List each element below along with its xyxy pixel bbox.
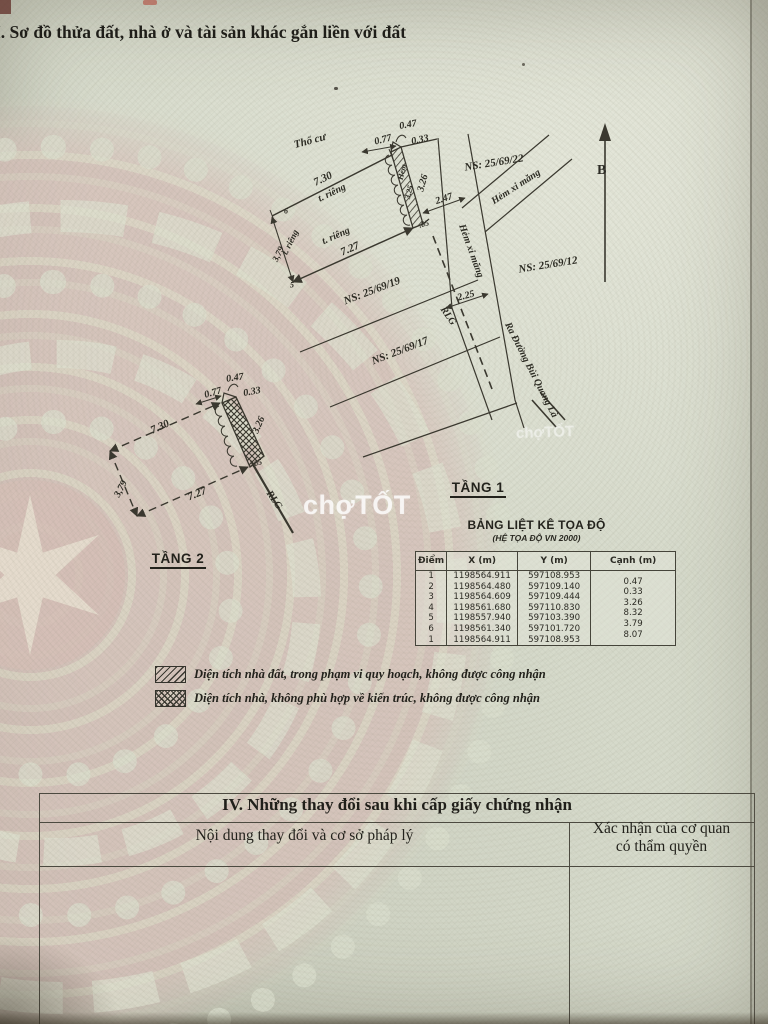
scanned-land-certificate-page: I. Sơ đồ thửa đất, nhà ở và tài sản khác… [0,0,768,1024]
section4-col2-line2: có thẩm quyền [569,838,754,856]
col-header-x: X (m) [447,552,518,571]
diagram-label: Hẻm xi măng [489,167,542,207]
floor1-label: TẦNG 1 [428,480,528,495]
page-edge-shade [752,0,768,1024]
diagram-label: 3.26 [415,173,430,193]
section4-col2-line1: Xác nhận của cơ quan [569,820,754,838]
diagram-label: 3,79 [112,479,130,500]
red-mark [143,0,157,5]
coord-cell: 597109.140 [518,582,591,593]
coord-cell: 2 [416,582,447,593]
col-header-diem: Điểm [416,552,447,571]
corner-shadow [0,934,120,1024]
coord-cell: 1198564.911 [447,571,518,582]
section4-title: IV. Những thay đổi sau khi cấp giấy chứn… [40,795,754,815]
diagram-label: 0.47 [398,118,417,132]
diagram-label: NS: 25/69/19 [342,275,402,308]
diagram-label: 3.25 [403,184,415,200]
legend-item: Diện tích nhà, không phù hợp về kiến trú… [155,690,546,707]
diagonal-hatch-swatch [155,666,186,683]
diagram-label: 7.27 [339,240,361,259]
diagram-label: 3.26 [250,415,267,435]
legend-item: Diện tích nhà đất, trong phạm vi quy hoạ… [155,666,546,683]
diagram-label: NS: 25/69/17 [370,335,430,368]
legend: Diện tích nhà đất, trong phạm vi quy hoạ… [155,666,546,714]
coord-cell: 597110.830 [518,603,591,614]
chotot-watermark-small: chợTỐT [516,423,575,442]
coord-cell: 8.07 [591,635,676,646]
coord-cell: 6 [416,624,447,635]
section4-table: IV. Những thay đổi sau khi cấp giấy chứn… [39,793,755,1024]
legend-text: Diện tích nhà đất, trong phạm vi quy hoạ… [194,667,546,682]
diagram-label: 3,79 [270,245,286,264]
diagram-label: RLG [264,489,284,512]
coord-row: 11198564.911597108.9538.07 [416,635,676,646]
coordinate-table: Điểm X (m) Y (m) Cạnh (m) 11198564.91159… [415,551,676,646]
diagram-label: 0.33 [242,385,261,399]
scan-speck [522,63,525,66]
coord-cell: 597103.390 [518,613,591,624]
diagram-label: .05 [418,218,430,229]
chotot-watermark: chợTỐT [303,490,411,521]
legend-text: Diện tích nhà, không phù hợp về kiến trú… [194,691,540,706]
coord-cell: 1198561.680 [447,603,518,614]
coord-cell: 1198561.340 [447,624,518,635]
diagram-label: .05 [251,457,263,468]
diagram-label: 0.77 [373,132,393,147]
diagram-label: Hẻm xi măng [456,223,486,280]
diagram-label: 7.27 [186,485,208,503]
north-label: B [597,163,606,179]
coord-cell: 597108.953 [518,635,591,646]
diagram-label: 0.33 [410,133,429,147]
section4-col1-header: Nội dung thay đổi và cơ sở pháp lý [40,827,569,845]
coord-cell: 3 [416,592,447,603]
coord-header-row: Điểm X (m) Y (m) Cạnh (m) [416,552,676,571]
diagram-label: 2.47 [434,191,454,207]
section4-col2-header: Xác nhận của cơ quan có thẩm quyền [569,820,754,856]
floor2-label: TẦNG 2 [128,551,228,566]
coord-cell: 1198564.609 [447,592,518,603]
coord-cell: 5 [416,613,447,624]
diagram-label: 6 [284,207,288,216]
col-header-canh: Cạnh (m) [591,552,676,571]
scan-speck [334,87,338,90]
coord-cell: 1198564.480 [447,582,518,593]
diagram-label: 0.47 [226,371,245,384]
coord-table-subtitle: (HỆ TỌA ĐỘ VN 2000) [413,533,660,543]
coord-cell: 1198564.911 [447,635,518,646]
coord-cell: 1 [416,635,447,646]
diagram-label: 2.25 [456,288,476,303]
coord-table-body: 11198564.911597108.95321198564.480597109… [416,571,676,646]
diagram-label: 5 [290,281,294,290]
coord-cell: 4 [416,603,447,614]
col-header-y: Y (m) [518,552,591,571]
coord-table-title: BẢNG LIỆT KÊ TỌA ĐỘ [413,518,660,532]
diagram-label: 0.77 [203,385,223,400]
diagram-label: NS: 25/69/22 [464,152,525,173]
cross-hatch-swatch [155,690,186,707]
diagram-label: 7.30 [312,169,335,188]
diagram-label: Ra Đường Bùi Quang Là [502,321,560,420]
diagram-label: 7.30 [149,417,172,436]
section4-divider [40,866,754,867]
diagram-label: NS: 25/69/12 [518,254,579,275]
coord-cell: 1 [416,571,447,582]
corner-mark [0,0,11,14]
diagram-label: RLG [438,305,458,328]
coord-cell: 597101.720 [518,624,591,635]
coord-cell: 597109.444 [518,592,591,603]
coord-cell: 597108.953 [518,571,591,582]
diagram-label: Thổ cư [293,131,328,151]
coord-cell: 1198557.940 [447,613,518,624]
diagram-label: Hẻm [396,163,409,181]
